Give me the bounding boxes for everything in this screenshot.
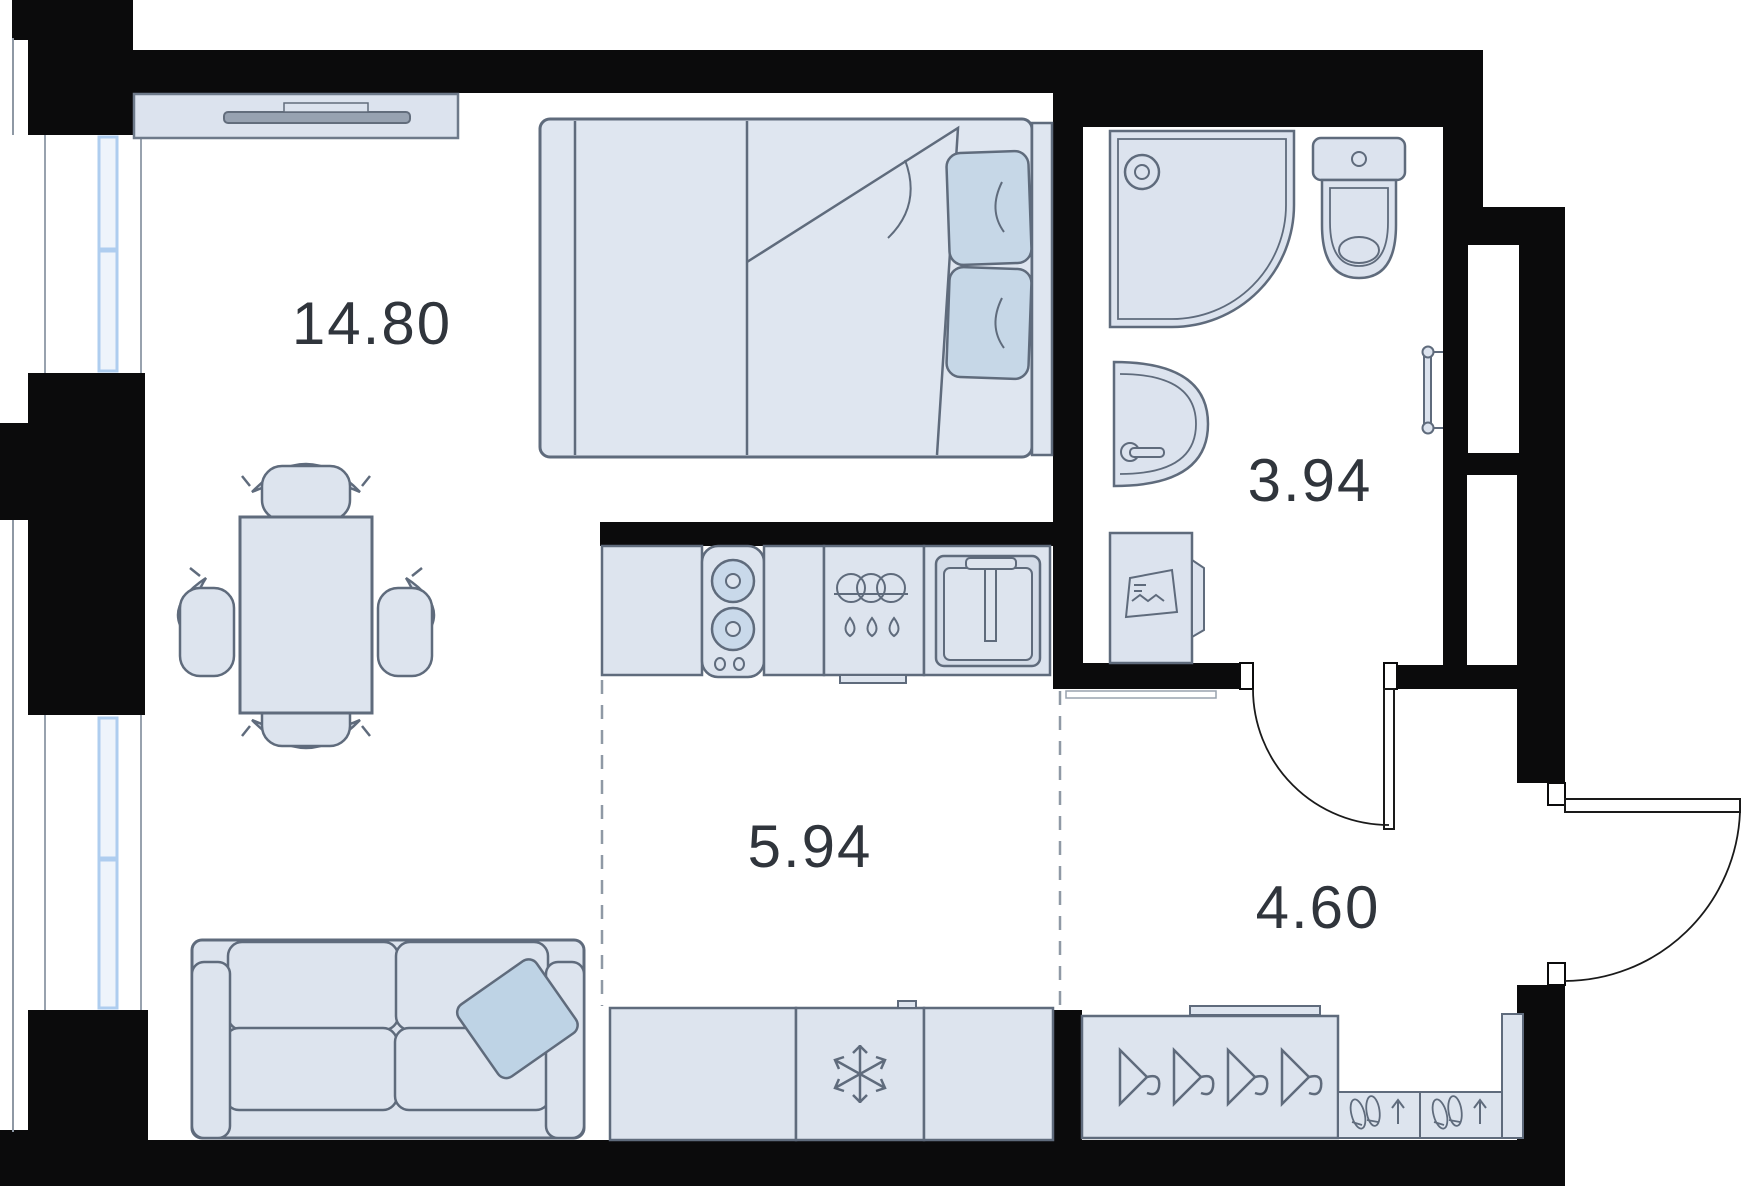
wall [28, 1010, 148, 1140]
dishwasher [824, 546, 924, 683]
wall [0, 1130, 28, 1186]
door-swing-arc [1565, 812, 1740, 981]
threshold [1066, 691, 1216, 698]
dining-set [178, 464, 434, 748]
chair [178, 568, 234, 676]
stove [702, 546, 764, 677]
toilet [1313, 138, 1405, 278]
tv-icon [224, 112, 410, 123]
pillow [946, 267, 1032, 380]
wall [1443, 475, 1467, 667]
door-jamb [1548, 963, 1565, 985]
shoe-cabinet-side [1502, 1014, 1523, 1138]
wall-top [133, 50, 1483, 93]
fridge [796, 1001, 924, 1140]
entrance-door [1548, 783, 1740, 985]
door-jamb [1384, 663, 1397, 689]
kitchen-upper-counter [602, 546, 1050, 683]
window-glass [99, 718, 117, 858]
toilet-tank [1313, 138, 1405, 180]
door-jamb [1548, 783, 1565, 805]
wall-bathroom-right [1443, 50, 1483, 207]
wall-bottom [28, 1140, 1565, 1186]
door-jamb [1240, 663, 1253, 689]
sofa-back-cushion [228, 942, 398, 1030]
window-glass [99, 137, 117, 249]
double-bed [540, 119, 1052, 457]
faucet-icon [966, 558, 1016, 569]
wardrobe [1082, 1006, 1338, 1138]
wall-stub [1053, 1010, 1082, 1140]
wall-bedroom-bathroom [1053, 93, 1083, 665]
wall-notch [0, 423, 28, 520]
pillow [946, 151, 1032, 266]
wall-left-mid [28, 373, 145, 715]
wall [1397, 665, 1519, 689]
kitchen-lower-counter [610, 1001, 1053, 1140]
bathroom-sink [1114, 362, 1208, 486]
wall-shaft-left [1443, 245, 1468, 475]
counter [610, 1008, 796, 1140]
shower [1110, 131, 1294, 327]
tv-unit [134, 94, 458, 138]
faucet-icon [985, 569, 996, 641]
shoe-rack [1338, 1014, 1523, 1138]
wall-bathroom-bottom [1053, 663, 1240, 689]
wall-shaft-bottom [1443, 453, 1523, 475]
sofa-seat-cushion [225, 1028, 397, 1110]
door-leaf [1384, 689, 1394, 829]
floor-plan: 14.80 3.94 5.94 4.60 [0, 0, 1747, 1186]
wall-kitchen [600, 522, 1053, 546]
wall-bathroom-top [1083, 93, 1443, 127]
window-left-upper [45, 135, 141, 373]
wall [28, 0, 133, 135]
window-glass [99, 860, 117, 1008]
faucet-icon [1130, 448, 1164, 457]
kitchen-sink [924, 546, 1050, 675]
wall-right [1517, 475, 1565, 783]
bed-headboard [1032, 123, 1052, 455]
area-label-living-room: 14.80 [292, 290, 452, 357]
counter [602, 546, 702, 675]
towel-rail [1423, 347, 1444, 434]
sofa-armrest [192, 962, 230, 1138]
counter [764, 546, 824, 675]
dining-table [240, 517, 372, 713]
door-swing-arc [1253, 689, 1389, 825]
chair [378, 568, 434, 676]
window-glass [99, 251, 117, 371]
area-label-hallway: 4.60 [1256, 874, 1381, 941]
area-label-kitchen: 5.94 [748, 813, 873, 880]
washing-machine [1110, 533, 1204, 663]
sofa [192, 940, 584, 1138]
door-leaf [1565, 799, 1740, 812]
chair [242, 464, 370, 520]
area-label-bathroom: 3.94 [1248, 447, 1373, 514]
counter [924, 1008, 1053, 1140]
wall-shaft-right [1519, 233, 1565, 475]
window-left-lower [45, 715, 141, 1010]
